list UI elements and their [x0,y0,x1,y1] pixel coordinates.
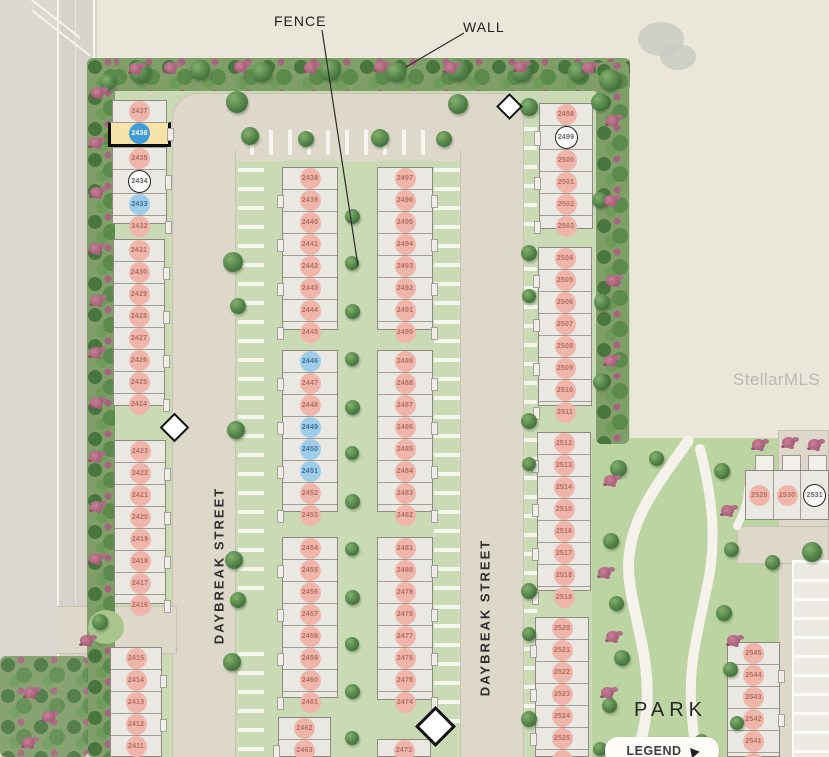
lot-unit-2476: 2476 [378,647,432,669]
lot-number-2418: 2418 [130,551,151,572]
lot-number-2454: 2454 [300,538,321,559]
lot-unit-2517: 2517 [538,542,590,564]
flowering-shrub-icon [374,61,387,72]
flowering-shrub-icon [444,62,457,73]
lot-unit-2512: 2512 [538,433,590,454]
lot-unit-2418: 2418 [115,550,165,572]
lot-unit-2488: 2488 [378,372,432,394]
lot-unit-2451: 2451 [283,460,337,482]
lot-unit-2434: 2434 [113,169,166,193]
lot-number-2485: 2485 [395,439,416,460]
lot-number-2516: 2516 [554,521,575,542]
lot-number-2429: 2429 [129,284,150,305]
lot-number-2441: 2441 [300,234,321,255]
lot-number-2460: 2460 [300,670,321,691]
lot-unit-2483: 2483 [378,482,432,504]
flowering-shrub-icon [234,61,247,72]
lot-number-2436: 2436 [129,123,150,144]
tree-icon [714,463,730,479]
lot-unit-2529: 2529 [746,471,773,519]
lot-number-2545: 2545 [743,643,764,664]
lot-number-2477: 2477 [395,626,416,647]
lot-unit-2458: 2458 [283,625,337,647]
lot-unit-2500: 2500 [540,149,592,171]
flowering-shrub-icon [721,505,734,516]
lot-unit-2424: 2424 [114,393,164,415]
bldg-2504-2511: 25042505250625072508250925102511 [538,247,592,406]
lot-unit-2522: 2522 [536,661,588,683]
lot-unit-2519: 2519 [538,586,590,608]
flowering-shrub-icon [89,243,102,254]
lot-number-2541: 2541 [743,731,764,752]
lot-number-2427: 2427 [129,328,150,349]
lot-unit-2510: 2510 [539,379,591,401]
lot-unit-2463: 2463 [279,739,330,757]
lot-number-2510: 2510 [555,380,576,401]
lot-unit-2526: 2526 [536,749,588,757]
flowering-shrub-icon [90,187,103,198]
flowering-shrub-icon [89,553,102,564]
lot-unit-2425: 2425 [114,371,164,393]
lot-number-2520: 2520 [552,618,573,639]
lot-unit-2438: 2438 [283,168,337,189]
lot-unit-2461: 2461 [283,691,337,713]
lot-number-2445: 2445 [300,322,321,343]
flowering-shrub-icon [606,631,619,642]
lot-number-2440: 2440 [300,212,321,233]
lot-unit-2479: 2479 [378,581,432,603]
tree-icon [723,662,738,677]
tree-icon [603,533,619,549]
lot-unit-2524: 2524 [536,705,588,727]
lot-number-2438: 2438 [300,168,321,189]
flowering-shrub-icon [24,687,37,698]
lot-number-2419: 2419 [130,529,151,550]
lot-number-2498: 2498 [556,104,577,125]
lot-number-2475: 2475 [395,670,416,691]
legend-panel: LEGEND [605,737,719,757]
tree-icon [436,131,452,147]
lot-unit-2499: 2499 [540,125,592,149]
lot-number-2452: 2452 [300,483,321,504]
lot-number-2540: 2540 [743,753,764,757]
bldg-2410-2415: 241524142413241224112410 [110,647,162,757]
tree-icon [386,62,406,82]
lot-number-2509: 2509 [555,358,576,379]
parking-stalls [238,168,264,600]
lot-number-2529: 2529 [749,485,770,506]
flowering-shrub-icon [606,115,619,126]
bldg-2416-2423: 24232422242124202419241824172416 [114,440,166,604]
lot-unit-2448: 2448 [283,394,337,416]
lot-unit-2423: 2423 [115,441,165,462]
lot-number-2433: 2433 [129,194,150,215]
lot-unit-2505: 2505 [539,269,591,291]
lot-unit-2473: 2473 [378,740,430,757]
lot-unit-2485: 2485 [378,438,432,460]
flowering-shrub-icon [604,195,617,206]
flowering-shrub-icon [727,635,740,646]
tree-icon [190,60,210,80]
lot-unit-2440: 2440 [283,211,337,233]
lot-number-2525: 2525 [552,728,573,749]
field-texture [660,44,696,70]
lot-unit-2414: 2414 [111,669,161,691]
lot-number-2420: 2420 [130,507,151,528]
bldg-2446-2453: 24462447244824492450245124522453 [282,350,338,512]
tree-icon [345,542,359,556]
flowering-shrub-icon [752,439,765,450]
lot-unit-2428: 2428 [114,305,164,327]
tree-icon [345,209,360,224]
flowering-shrub-icon [304,62,317,73]
flowering-shrub-icon [808,439,821,450]
lot-number-2531: 2531 [803,484,826,507]
lot-number-2453: 2453 [300,505,321,526]
tree-icon [765,555,780,570]
lot-unit-2446: 2446 [283,351,337,372]
lot-unit-2543: 2543 [728,686,779,708]
lot-number-2459: 2459 [300,648,321,669]
tree-icon [227,421,245,439]
lot-number-2442: 2442 [300,256,321,277]
parking-stalls [238,652,264,752]
lot-unit-2496: 2496 [378,189,432,211]
tree-icon [345,731,359,745]
tree-icon [225,551,243,569]
flowering-shrub-icon [90,397,103,408]
lot-number-2522: 2522 [552,662,573,683]
bldg-2520-2526: 2520252125222523252425252526 [535,617,589,757]
lot-unit-2435: 2435 [113,147,166,169]
tree-icon [521,711,537,727]
tree-icon [345,446,359,460]
legend-label: LEGEND [626,744,681,757]
stellar-mls-watermark: StellarMLS [733,370,820,390]
tree-icon [345,352,359,366]
tree-icon [602,698,617,713]
tree-icon [345,256,359,270]
tree-icon [594,294,610,310]
lot-number-2411: 2411 [126,736,147,757]
lot-number-2521: 2521 [552,640,573,661]
lot-unit-2530: 2530 [773,471,801,519]
tree-icon [599,69,621,91]
lot-unit-2420: 2420 [115,506,165,528]
lot-unit-2474: 2474 [378,691,432,713]
lot-unit-2436: 2436 [108,122,171,147]
lot-unit-2437: 2437 [113,101,166,122]
bldg-2462-2463: 24622463 [278,717,331,757]
lot-number-2421: 2421 [130,485,151,506]
lot-number-2517: 2517 [554,543,575,564]
lot-unit-2456: 2456 [283,581,337,603]
tree-icon [591,93,609,111]
flowering-shrub-icon [89,451,102,462]
lot-number-2458: 2458 [300,626,321,647]
tree-icon [724,542,739,557]
tree-icon [614,650,630,666]
lot-number-2487: 2487 [395,395,416,416]
lot-number-2486: 2486 [395,417,416,438]
north-arrow-icon [686,744,699,757]
lot-number-2430: 2430 [129,262,150,283]
site-plan-map: 2437243624352434243324322431243024292428… [0,0,829,757]
lot-unit-2427: 2427 [114,327,164,349]
lot-unit-2492: 2492 [378,277,432,299]
lot-unit-2445: 2445 [283,321,337,343]
flowering-shrub-icon [606,275,619,286]
bldg-2474-2481: 24812480247924782477247624752474 [377,537,433,700]
lot-unit-2487: 2487 [378,394,432,416]
lot-unit-2545: 2545 [728,643,779,664]
lot-unit-2493: 2493 [378,255,432,277]
lot-unit-2514: 2514 [538,476,590,498]
tree-icon [223,252,243,272]
lot-number-2507: 2507 [555,314,576,335]
lot-unit-2482: 2482 [378,504,432,526]
lot-unit-2419: 2419 [115,528,165,550]
tree-icon [609,596,624,611]
lot-unit-2511: 2511 [539,401,591,423]
lot-number-2505: 2505 [555,270,576,291]
lot-unit-2455: 2455 [283,559,337,581]
lot-unit-2491: 2491 [378,299,432,321]
lot-unit-2439: 2439 [283,189,337,211]
lot-unit-2421: 2421 [115,484,165,506]
lot-unit-2454: 2454 [283,538,337,559]
flowering-shrub-icon [80,635,93,646]
lot-unit-2494: 2494 [378,233,432,255]
lot-number-2423: 2423 [130,441,151,462]
bldg-2512-2519: 25122513251425152516251725182519 [537,432,591,591]
lot-unit-2507: 2507 [539,313,591,335]
lot-number-2524: 2524 [552,706,573,727]
bldg-2490-2497: 24972496249524942493249224912490 [377,167,433,330]
lot-number-2495: 2495 [395,212,416,233]
tree-icon [520,98,538,116]
lot-number-2542: 2542 [743,709,764,730]
tree-icon [521,583,537,599]
tree-icon [448,94,468,114]
tree-icon [522,457,536,471]
lot-number-2544: 2544 [743,665,764,686]
lot-number-2428: 2428 [129,306,150,327]
lot-number-2426: 2426 [129,350,150,371]
lot-unit-2415: 2415 [111,648,161,669]
lot-number-2488: 2488 [395,373,416,394]
lot-unit-2462: 2462 [279,718,330,739]
lot-number-2425: 2425 [129,372,150,393]
lot-unit-2513: 2513 [538,454,590,476]
tree-icon [252,62,272,82]
lot-unit-2429: 2429 [114,283,164,305]
lot-number-2519: 2519 [554,587,575,608]
tree-icon [610,460,627,477]
lot-unit-2506: 2506 [539,291,591,313]
lot-unit-2501: 2501 [540,171,592,193]
bldg-2454-2461: 24542455245624572458245924602461 [282,537,338,698]
lot-unit-2478: 2478 [378,603,432,625]
tree-icon [345,400,360,415]
lot-number-2504: 2504 [555,248,576,269]
bldg-2540-2545: 254525442543254225412540 [727,642,780,757]
lot-number-2514: 2514 [554,477,575,498]
lot-unit-2430: 2430 [114,261,164,283]
tree-icon [521,245,537,261]
lot-number-2461: 2461 [300,692,321,713]
lot-unit-2489: 2489 [378,351,432,372]
lot-number-2511: 2511 [555,402,576,423]
flowering-shrub-icon [89,347,102,358]
lot-number-2414: 2414 [126,670,147,691]
lot-unit-2480: 2480 [378,559,432,581]
lot-unit-2441: 2441 [283,233,337,255]
lot-number-2451: 2451 [300,461,321,482]
flowering-shrub-icon [782,437,795,448]
lot-unit-2457: 2457 [283,603,337,625]
tree-icon [241,127,259,145]
lot-number-2501: 2501 [556,172,577,193]
lot-number-2456: 2456 [300,582,321,603]
lot-unit-2416: 2416 [115,594,165,616]
lot-unit-2525: 2525 [536,727,588,749]
lot-unit-2541: 2541 [728,730,779,752]
lot-unit-2475: 2475 [378,669,432,691]
lot-number-2479: 2479 [395,582,416,603]
lot-number-2455: 2455 [300,560,321,581]
lot-number-2447: 2447 [300,373,321,394]
lot-number-2494: 2494 [395,234,416,255]
flowering-shrub-icon [129,63,142,74]
lot-number-2512: 2512 [554,433,575,454]
lot-unit-2509: 2509 [539,357,591,379]
lot-unit-2503: 2503 [540,215,592,237]
tree-icon [371,129,389,147]
tree-icon [345,684,360,699]
left-field [0,0,57,757]
lot-number-2473: 2473 [394,740,415,757]
lot-unit-2433: 2433 [113,193,166,215]
tree-icon [92,614,108,630]
lot-number-2463: 2463 [294,740,315,757]
lot-number-2413: 2413 [126,692,147,713]
lot-number-2480: 2480 [395,560,416,581]
tree-icon [802,542,822,562]
lot-unit-2443: 2443 [283,277,337,299]
lot-number-2437: 2437 [129,101,150,122]
lot-unit-2442: 2442 [283,255,337,277]
lot-unit-2502: 2502 [540,193,592,215]
lot-number-2493: 2493 [395,256,416,277]
lot-number-2483: 2483 [395,483,416,504]
lot-number-2446: 2446 [300,351,321,372]
lot-unit-2413: 2413 [111,691,161,713]
tree-icon [298,131,314,147]
lot-number-2448: 2448 [300,395,321,416]
lot-number-2491: 2491 [395,300,416,321]
flowering-shrub-icon [604,475,617,486]
tree-icon [593,374,609,390]
lot-unit-2498: 2498 [540,104,592,125]
lot-number-2476: 2476 [395,648,416,669]
lot-number-2474: 2474 [395,692,416,713]
lot-number-2444: 2444 [300,300,321,321]
bldg-2438-2445: 24382439244024412442244324442445 [282,167,338,330]
lot-number-2530: 2530 [777,485,798,506]
lot-number-2431: 2431 [129,240,150,261]
lot-unit-2523: 2523 [536,683,588,705]
lot-unit-2411: 2411 [111,735,161,757]
flowering-shrub-icon [514,61,527,72]
tree-icon [345,590,360,605]
daybreak-street-right-label: DAYBREAK STREET [478,513,493,723]
bldg-2424-2431: 24312430242924282427242624252424 [113,239,165,406]
lot-unit-2477: 2477 [378,625,432,647]
lot-unit-2490: 2490 [378,321,432,343]
lot-number-2457: 2457 [300,604,321,625]
tree-icon [345,304,360,319]
lot-unit-2453: 2453 [283,504,337,526]
flowering-shrub-icon [90,295,103,306]
flowering-shrub-icon [90,501,103,512]
flowering-shrub-icon [604,355,617,366]
lot-unit-2447: 2447 [283,372,337,394]
lot-unit-2417: 2417 [115,572,165,594]
lot-number-2543: 2543 [743,687,764,708]
flowering-shrub-icon [582,62,595,73]
lot-unit-2432: 2432 [113,215,166,237]
lot-number-2478: 2478 [395,604,416,625]
fence-label: FENCE [274,13,326,29]
lot-number-2422: 2422 [130,463,151,484]
lot-unit-2508: 2508 [539,335,591,357]
lot-number-2450: 2450 [300,439,321,460]
lot-unit-2540: 2540 [728,752,779,757]
lot-number-2518: 2518 [554,565,575,586]
bldg-2473: 2473 [377,739,431,757]
tree-icon [230,592,246,608]
lot-number-2449: 2449 [300,417,321,438]
lot-number-2415: 2415 [126,648,147,669]
lot-number-2526: 2526 [552,750,573,757]
lot-number-2515: 2515 [554,499,575,520]
lot-number-2434: 2434 [128,170,151,193]
tree-icon [100,74,116,90]
lot-unit-2452: 2452 [283,482,337,504]
bldg-2498-2503: 249824992500250125022503 [539,103,593,229]
wall-label: WALL [463,19,505,35]
tree-icon [649,451,664,466]
lot-unit-2521: 2521 [536,639,588,661]
lot-number-2416: 2416 [130,595,151,616]
tree-icon [319,59,341,81]
lot-number-2490: 2490 [395,322,416,343]
tree-icon [230,298,246,314]
tree-icon [226,91,248,113]
lot-number-2435: 2435 [129,148,150,169]
lot-unit-2484: 2484 [378,460,432,482]
tree-icon [730,716,744,730]
flowering-shrub-icon [91,87,104,98]
lot-number-2503: 2503 [556,216,577,237]
lot-number-2513: 2513 [554,455,575,476]
lot-number-2481: 2481 [395,538,416,559]
lot-number-2424: 2424 [129,394,150,415]
lot-number-2443: 2443 [300,278,321,299]
lot-number-2412: 2412 [126,714,147,735]
lot-unit-2531: 2531 [800,471,828,519]
